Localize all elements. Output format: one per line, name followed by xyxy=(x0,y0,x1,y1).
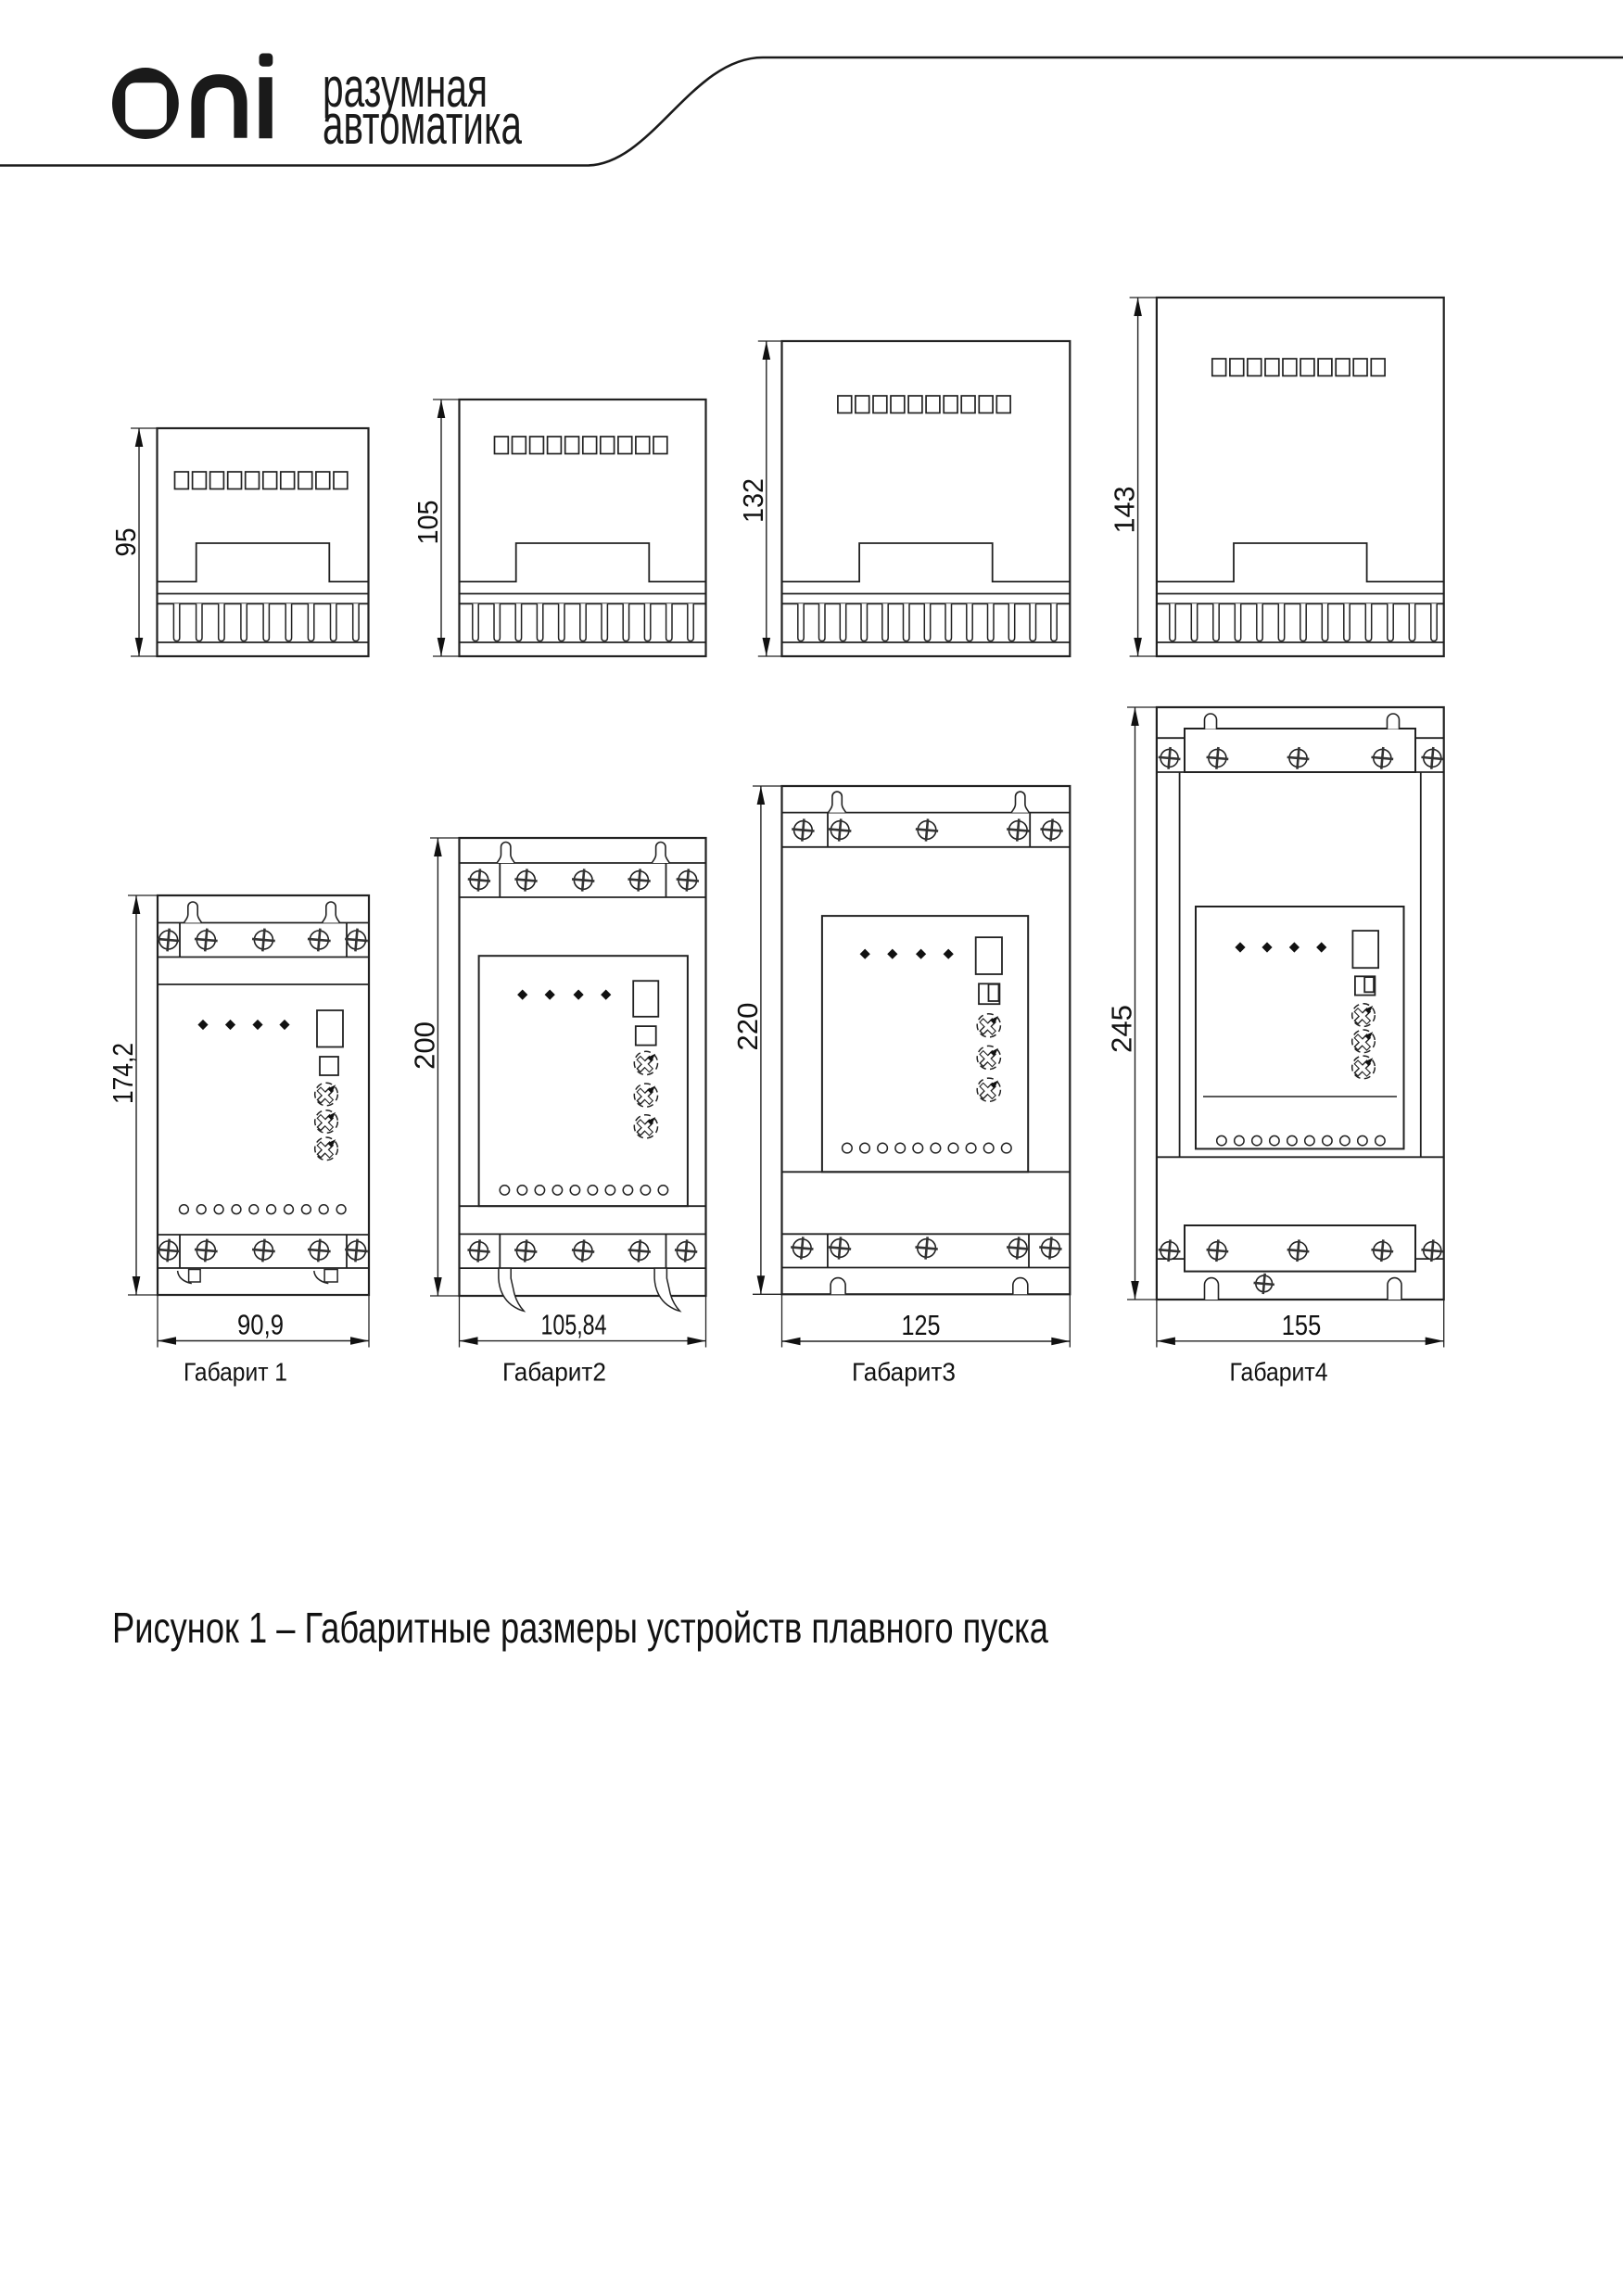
svg-text:125: 125 xyxy=(902,1309,941,1341)
svg-text:Габарит2: Габарит2 xyxy=(502,1358,606,1387)
svg-text:200: 200 xyxy=(408,1021,440,1070)
svg-text:105,84: 105,84 xyxy=(541,1309,607,1341)
svg-text:220: 220 xyxy=(731,1003,764,1051)
svg-text:174,2: 174,2 xyxy=(107,1043,139,1104)
svg-text:143: 143 xyxy=(1109,487,1141,534)
svg-text:90,9: 90,9 xyxy=(237,1309,284,1341)
svg-text:95: 95 xyxy=(109,528,142,557)
svg-text:155: 155 xyxy=(1282,1309,1322,1341)
svg-text:автоматика: автоматика xyxy=(323,94,522,156)
svg-text:Габарит3: Габарит3 xyxy=(852,1358,956,1387)
svg-text:Рисунок 1 – Габаритные размеры: Рисунок 1 – Габаритные размеры устройств… xyxy=(112,1604,1048,1652)
svg-text:Габарит4: Габарит4 xyxy=(1230,1358,1328,1387)
svg-text:245: 245 xyxy=(1106,1005,1138,1053)
svg-text:Габарит 1: Габарит 1 xyxy=(184,1358,287,1387)
svg-text:132: 132 xyxy=(737,478,769,523)
svg-text:105: 105 xyxy=(412,501,444,545)
